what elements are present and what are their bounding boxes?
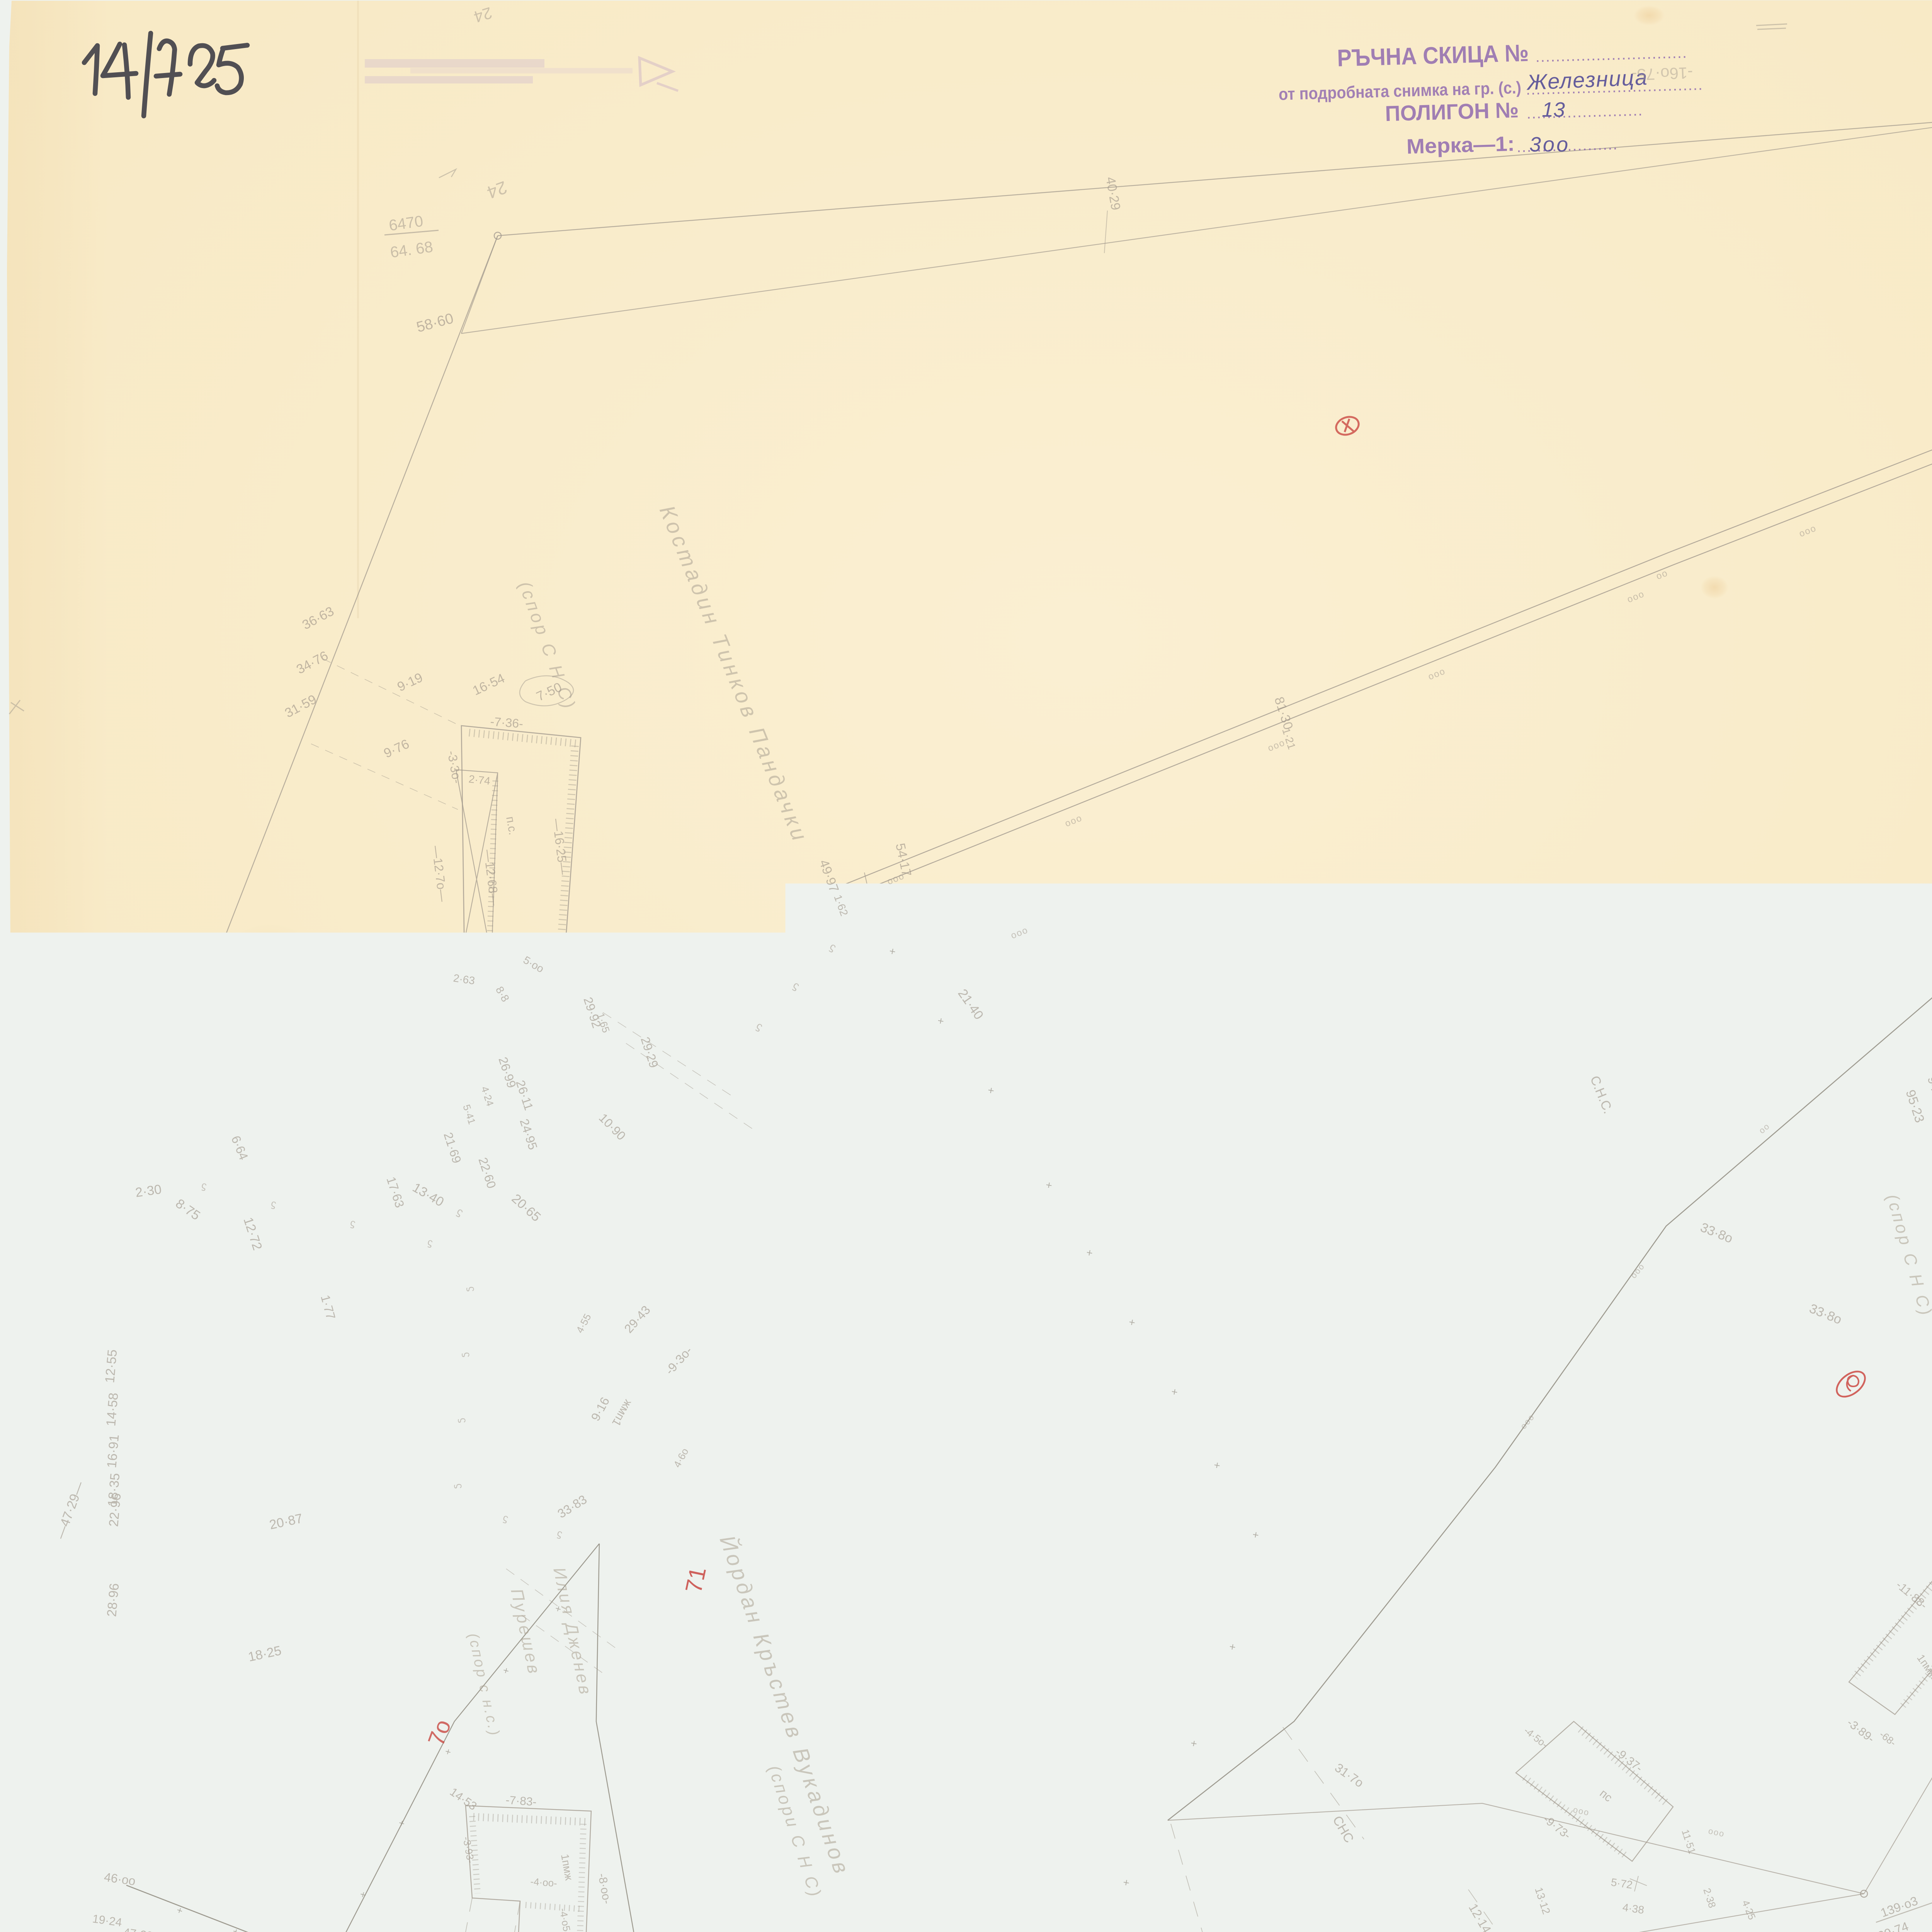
svg-text:ϛ: ϛ xyxy=(457,1417,469,1423)
svg-text:3оо: 3оо xyxy=(1529,133,1570,156)
svg-text:-4·оо-: -4·оо- xyxy=(530,1876,558,1889)
svg-text:16·91: 16·91 xyxy=(104,1434,122,1469)
svg-text:-7·36-: -7·36- xyxy=(490,714,524,731)
svg-text:71: 71 xyxy=(680,1565,711,1595)
svg-text:РЪЧНА СКИЦА №: РЪЧНА СКИЦА № xyxy=(1337,40,1529,72)
svg-text:-7·83-: -7·83- xyxy=(505,1794,537,1809)
svg-text:12·55: 12·55 xyxy=(102,1349,120,1384)
svg-text:-16о·75-: -16о·75- xyxy=(1631,64,1693,84)
svg-text:ϛ: ϛ xyxy=(466,1286,478,1292)
svg-text:ϛ: ϛ xyxy=(454,1483,466,1489)
svg-text:22·96: 22·96 xyxy=(106,1493,124,1527)
svg-text:13: 13 xyxy=(1542,98,1565,121)
svg-text:ПОЛИГОН №: ПОЛИГОН № xyxy=(1385,98,1519,126)
svg-text:Мерка—1:: Мерка—1: xyxy=(1406,132,1515,158)
svg-text:28·96: 28·96 xyxy=(104,1583,122,1617)
svg-text:14·58: 14·58 xyxy=(104,1392,121,1427)
svg-text:2·74: 2·74 xyxy=(468,773,491,787)
svg-text:ϛ: ϛ xyxy=(461,1352,473,1358)
